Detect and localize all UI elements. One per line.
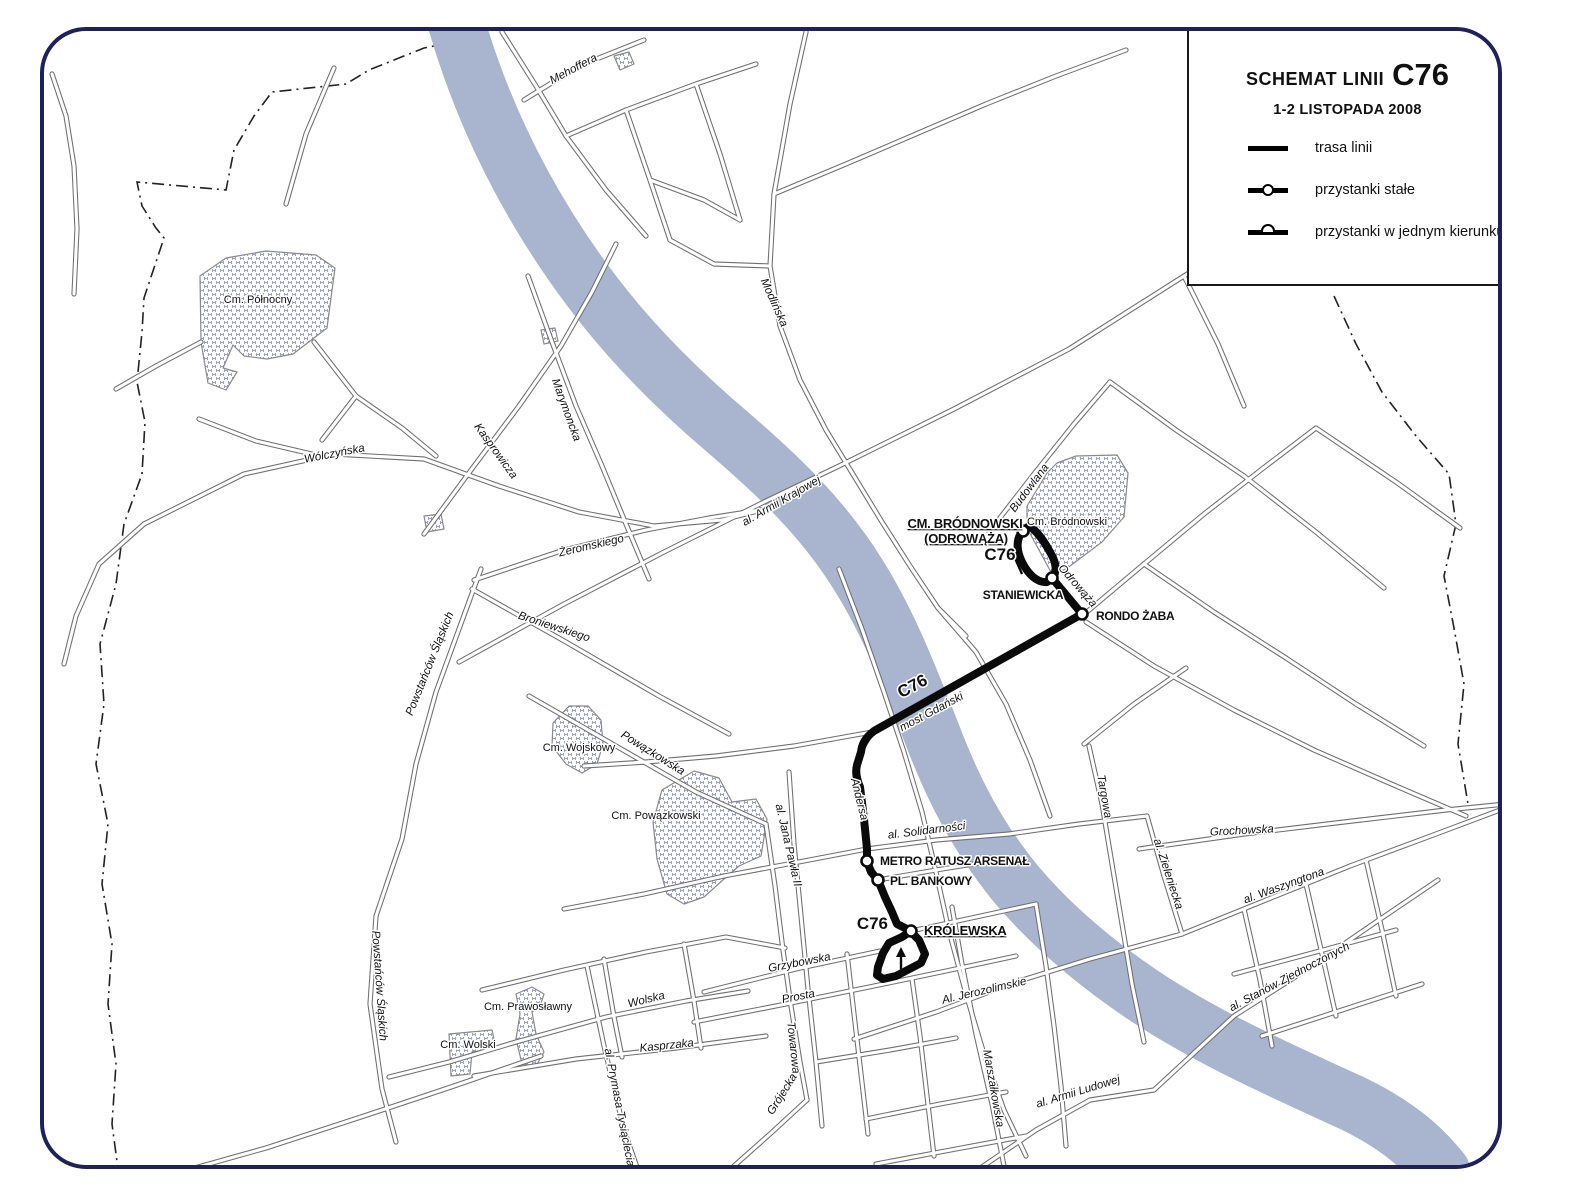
street-label: Mehoffera xyxy=(548,52,599,87)
route-badge-label: C76 xyxy=(984,545,1015,564)
street-label: Kasprzaka xyxy=(639,1037,694,1055)
cemetery-label: Cm. Bródnowski xyxy=(1027,516,1107,528)
street-label: Kasprowicza xyxy=(471,421,519,481)
stop-label: PL. BANKOWY xyxy=(890,874,972,888)
street-label: Al. Jerozolimskie xyxy=(940,976,1028,1007)
street-label: al. Jana Pawła II xyxy=(773,803,804,889)
street-label: Wólczyńska xyxy=(303,442,366,465)
legend-item-route: trasa linii xyxy=(1189,140,1502,156)
stop-label: METRO RATUSZ ARSENAŁ xyxy=(880,854,1029,868)
street-label: Targowa xyxy=(1094,774,1113,819)
regular-stop-symbol xyxy=(1247,188,1289,193)
street-label: Towarowa xyxy=(784,1021,801,1074)
stop-terminus-label: CM. BRÓDNOWSKI xyxy=(908,516,1023,531)
street-label: Broniewskiego xyxy=(517,610,592,645)
map-subtitle: 1-2 LISTOPADA 2008 xyxy=(1189,102,1502,118)
route-badge-label: C76 xyxy=(857,914,888,933)
legend-item-stops: przystanki stałe xyxy=(1189,182,1502,198)
legend-item-label: przystanki stałe xyxy=(1315,182,1415,198)
stop-marker xyxy=(1077,609,1088,620)
street-label: Żeromskiego xyxy=(557,533,626,560)
legend-item-label: przystanki w jednym kierunku xyxy=(1315,224,1502,240)
stop-marker xyxy=(906,926,917,937)
cemetery-label: Cm. Wolski xyxy=(440,1039,495,1051)
cemetery-label: Cm. Północny xyxy=(224,294,293,306)
stop-label: RONDO ŻABA xyxy=(1096,608,1175,623)
stop-marker xyxy=(873,875,884,886)
legend-items: trasa linii przystanki stałe przystanki … xyxy=(1189,140,1502,240)
street-label: al. Zieleniecka xyxy=(1151,837,1185,911)
oneway-stop-symbol xyxy=(1247,230,1289,235)
street-label: Marszałkowska xyxy=(980,1049,1005,1128)
stop-marker xyxy=(1047,573,1058,584)
map-title: SCHEMAT LINII C76 xyxy=(1189,57,1502,93)
line-number: C76 xyxy=(1392,57,1449,93)
legend-panel: SCHEMAT LINII C76 1-2 LISTOPADA 2008 tra… xyxy=(1187,31,1502,286)
route-line-symbol xyxy=(1247,146,1289,151)
legend-item-label: trasa linii xyxy=(1315,140,1372,156)
title-prefix: SCHEMAT LINII xyxy=(1246,69,1384,90)
street-label: Grochowska xyxy=(1210,823,1274,838)
schematic-map-page: { "header": { "title_prefix": "SCHEMAT L… xyxy=(0,0,1574,1200)
street-label: Grzybowska xyxy=(767,951,831,975)
street-label: al. Prymasa Tysiąclecia xyxy=(602,1047,637,1167)
cemetery-label: Cm. Prawosławny xyxy=(484,1001,573,1013)
street-label: Andersa xyxy=(848,776,870,821)
stop-marker xyxy=(862,856,873,867)
cemetery-label: Cm. Wojskowy xyxy=(543,742,616,754)
stop-label: STANIEWICKA xyxy=(983,588,1064,602)
street-label: al. Waszyngtona xyxy=(1242,866,1326,906)
cemetery-label: Cm. Powązkowski xyxy=(611,810,700,822)
stop-terminus-label: KRÓLEWSKA xyxy=(924,923,1007,938)
stop-terminus-label: (ODROWĄŻA) xyxy=(924,531,1008,546)
legend-item-oneway-stops: przystanki w jednym kierunku xyxy=(1189,224,1502,240)
map-frame: CM. BRÓDNOWSKI(ODROWĄŻA)STANIEWICKARONDO… xyxy=(40,27,1502,1169)
